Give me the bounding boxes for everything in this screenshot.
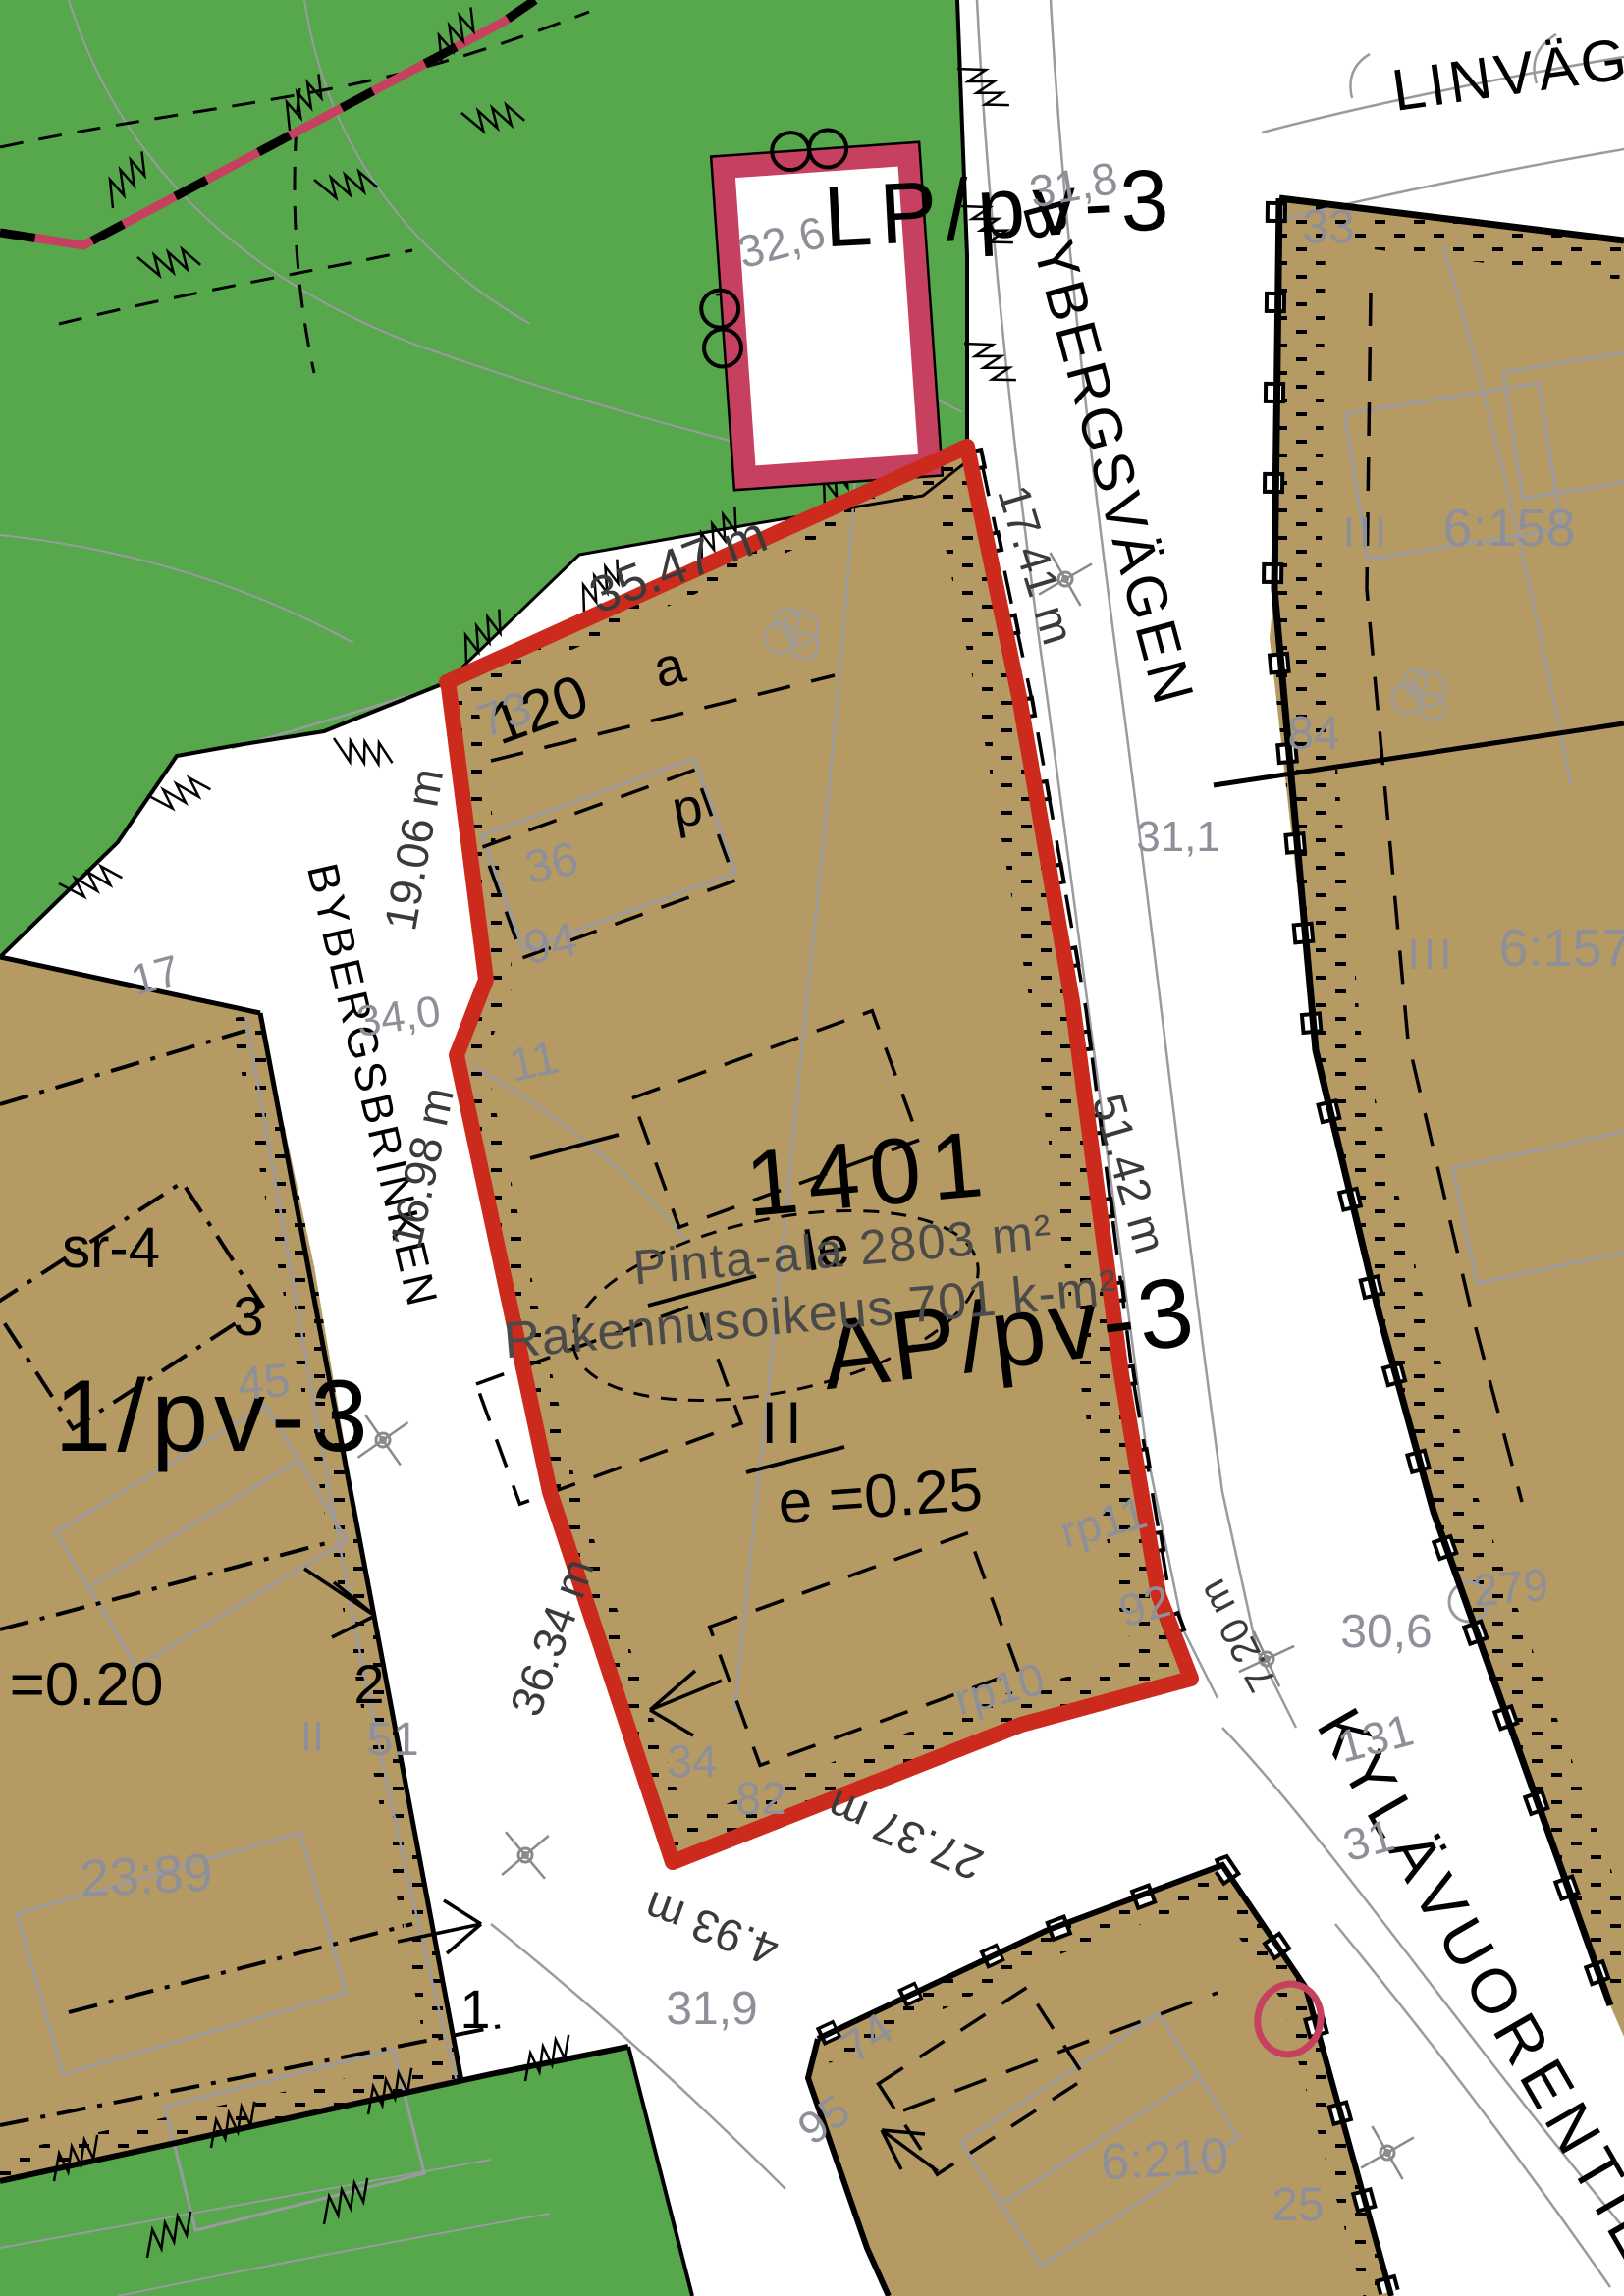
efficiency-west: =0.20 [10,1651,164,1719]
point-id-45: 45 [236,1355,293,1411]
zone-code-lp: LP/pv-3 [821,150,1178,266]
parcel-id-6-157: 6:157 [1498,919,1624,978]
point-id-25: 25 [1272,2179,1324,2231]
parcel-id-23-89: 23:89 [79,1843,214,1909]
point-id-279: 279 [1471,1559,1550,1616]
parcel-number-2: 2 [353,1653,384,1715]
parcel-number-1: 1 [460,1978,490,2040]
point-id-94: 94 [519,913,581,975]
point-id-34: 34 [667,1735,717,1787]
zoning-map: BYBERGSVÄGEN BYBERGSBRINKEN KYLÄVUORENTI… [0,0,1624,2296]
protection-label-sr4: sr-4 [62,1216,160,1280]
floors-iii-lower: III [1408,931,1456,979]
elevation-31-1: 31,1 [1136,813,1220,861]
floor-count-ap: II [761,1390,809,1456]
floors-ii-west: II [300,1713,324,1761]
parcel-id-6-158: 6:158 [1442,499,1575,558]
efficiency-ap: e =0.25 [776,1456,985,1537]
elevation-31-9: 31,9 [666,1983,757,2035]
parcel-id-6-210: 6:210 [1100,2128,1230,2192]
floors-iii-upper: III [1343,508,1391,557]
zone-code-west: 1/pv-3 [54,1360,373,1473]
parcel-number-3: 3 [233,1285,263,1347]
elevation-30-6: 30,6 [1340,1606,1432,1658]
point-id-82: 82 [735,1773,785,1824]
point-id-36: 36 [520,832,582,894]
map-canvas: BYBERGSVÄGEN BYBERGSBRINKEN KYLÄVUORENTI… [0,0,1624,2296]
point-id-84: 84 [1287,708,1339,760]
parcel-id-33: 33 [1302,201,1354,253]
point-id-51: 51 [366,1714,418,1766]
